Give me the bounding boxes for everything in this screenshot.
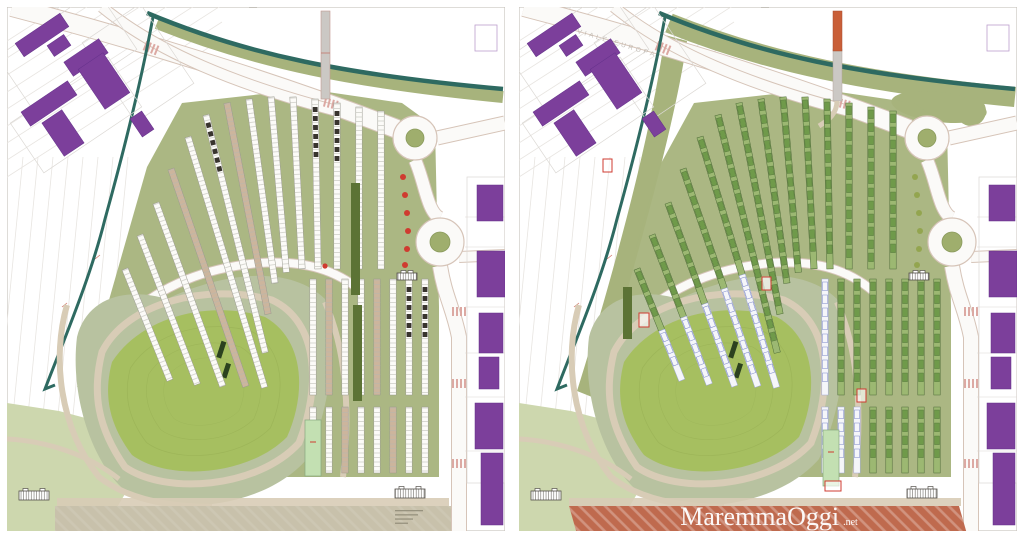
site-plan-left-map bbox=[7, 7, 505, 531]
market-stall-row bbox=[934, 407, 940, 473]
watermark: MaremmaOggi.net bbox=[680, 502, 858, 531]
roundabout-icon bbox=[905, 116, 949, 160]
watermark-suffix: .net bbox=[843, 517, 858, 528]
market-stall-row bbox=[902, 407, 908, 473]
market-stall-row bbox=[374, 279, 380, 395]
tree-dot-icon bbox=[917, 228, 923, 234]
market-stall-row bbox=[854, 279, 860, 395]
market-stall-row bbox=[422, 279, 428, 395]
tree-dot-icon bbox=[404, 246, 410, 252]
service-area bbox=[823, 430, 839, 486]
market-stall-row bbox=[342, 407, 348, 473]
market-stall-row bbox=[870, 407, 876, 473]
tree-dot-icon bbox=[402, 262, 408, 268]
market-stall-row bbox=[838, 279, 844, 395]
comparison-image: VIALE EUROPA MaremmaOggi.net bbox=[0, 0, 1024, 538]
roundabout-icon bbox=[416, 218, 464, 266]
market-stall-row bbox=[406, 279, 412, 395]
map-layers-left bbox=[7, 7, 505, 531]
market-stall-row bbox=[918, 407, 924, 473]
site-plan-left bbox=[7, 7, 505, 531]
market-stall-row bbox=[378, 111, 384, 269]
market-stall-row bbox=[326, 279, 332, 395]
market-stall-row bbox=[890, 111, 896, 269]
market-stall-row bbox=[422, 407, 428, 473]
tree-dot-icon bbox=[404, 210, 410, 216]
market-stall-row bbox=[310, 279, 316, 395]
market-stall-row bbox=[326, 407, 332, 473]
market-stall-row bbox=[870, 279, 876, 395]
market-stall-row bbox=[390, 407, 396, 473]
market-stall-row bbox=[358, 407, 364, 473]
market-stall-row bbox=[822, 279, 828, 395]
tree-dot-icon bbox=[400, 174, 406, 180]
market-stall-row bbox=[868, 107, 874, 269]
roundabout-icon bbox=[928, 218, 976, 266]
market-stall-row bbox=[886, 407, 892, 473]
tree-dot-icon bbox=[916, 246, 922, 252]
legend-strip bbox=[55, 506, 451, 531]
hill-park bbox=[76, 276, 332, 506]
tree-dot-icon bbox=[914, 262, 920, 268]
market-stall-row bbox=[390, 279, 396, 395]
site-plan-right-map: VIALE EUROPA MaremmaOggi.net bbox=[519, 7, 1017, 531]
footbridge-icon bbox=[321, 11, 330, 99]
market-stall-row bbox=[918, 279, 924, 395]
map-layers-right bbox=[519, 7, 1017, 531]
market-stall-row bbox=[334, 103, 340, 269]
market-stall-row bbox=[846, 103, 852, 269]
market-stall-row bbox=[934, 279, 940, 395]
tree-dot-icon bbox=[914, 192, 920, 198]
roundabout-icon bbox=[393, 116, 437, 160]
market-stall-row bbox=[902, 279, 908, 395]
tree-dot-icon bbox=[916, 210, 922, 216]
market-stall-row bbox=[406, 407, 412, 473]
market-stall-row bbox=[342, 279, 348, 395]
tree-dot-icon bbox=[405, 228, 411, 234]
market-stall-row bbox=[374, 407, 380, 473]
tree-dot-icon bbox=[912, 174, 918, 180]
tree-dot-icon bbox=[402, 192, 408, 198]
service-area bbox=[305, 420, 321, 476]
site-plan-right: VIALE EUROPA MaremmaOggi.net bbox=[519, 7, 1017, 531]
market-stall-row bbox=[854, 407, 860, 473]
market-stall-row bbox=[886, 279, 892, 395]
watermark-main: MaremmaOggi bbox=[680, 502, 839, 531]
